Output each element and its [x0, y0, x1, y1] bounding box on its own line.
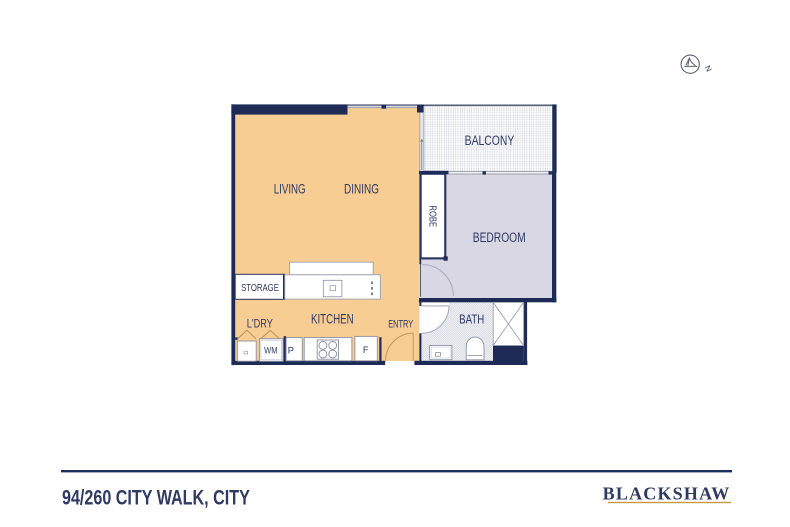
svg-text:P: P	[288, 346, 294, 356]
svg-text:STORAGE: STORAGE	[241, 282, 279, 293]
svg-text:ENTRY: ENTRY	[388, 318, 413, 330]
svg-text:WM: WM	[264, 346, 277, 356]
svg-text:N: N	[703, 64, 714, 74]
svg-text:BALCONY: BALCONY	[465, 133, 515, 149]
svg-text:BEDROOM: BEDROOM	[473, 230, 526, 246]
svg-text:L'DRY: L'DRY	[247, 318, 273, 331]
svg-text:LIVING: LIVING	[274, 182, 306, 197]
svg-text:DINING: DINING	[344, 181, 379, 197]
svg-text:94/260 CITY WALK, CITY: 94/260 CITY WALK, CITY	[62, 486, 250, 510]
svg-text:KITCHEN: KITCHEN	[311, 312, 354, 327]
svg-text:BATH: BATH	[459, 314, 484, 327]
svg-text:BLACKSHAW: BLACKSHAW	[603, 484, 731, 504]
svg-text:F: F	[363, 345, 369, 355]
svg-text:ROBE: ROBE	[427, 205, 438, 227]
